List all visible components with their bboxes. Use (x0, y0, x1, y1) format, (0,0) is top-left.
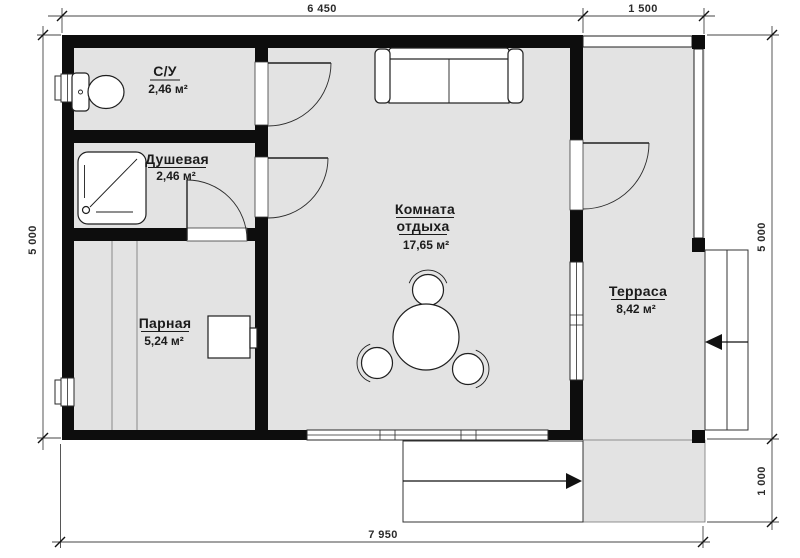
toilet-icon (72, 73, 124, 111)
wall-right-seg2 (570, 210, 583, 262)
wc-window-icon (55, 74, 74, 102)
room-area-terrace: 8,42 м² (616, 302, 656, 316)
wall-shower-steam-seg1 (74, 228, 187, 241)
room-label-steam: Парная (139, 315, 192, 331)
post-mid-right (692, 238, 705, 252)
wall-wc-shower (74, 130, 268, 143)
floor-plan-drawing: 6 450 1 500 5 000 5 000 1 000 7 950 С/У … (0, 0, 800, 558)
wall-vertical-seg3 (255, 217, 268, 430)
room-label-wc: С/У (153, 63, 177, 79)
lounge-east-window-icon (570, 262, 583, 380)
sauna-stove-icon (208, 316, 257, 358)
sofa-icon (375, 48, 523, 103)
wall-vertical-seg2 (255, 125, 268, 157)
shower-tray-icon (78, 152, 146, 224)
wall-vertical-seg1 (255, 48, 268, 62)
dim-bottom-total: 7 950 (368, 529, 398, 541)
room-area-steam: 5,24 м² (144, 334, 184, 348)
room-area-lounge: 17,65 м² (403, 238, 449, 252)
porch-floor (583, 440, 705, 522)
wall-right-seg3 (570, 380, 583, 440)
railing-top (583, 36, 692, 47)
wall-left-seg2 (62, 102, 74, 378)
wall-bottom-seg1 (62, 430, 307, 440)
wall-top (62, 35, 583, 48)
dim-top-main: 6 450 (307, 3, 337, 15)
railing-right (694, 49, 703, 238)
steam-door-opening (187, 228, 247, 241)
wall-left-seg1 (62, 35, 74, 74)
room-area-shower: 2,46 м² (156, 169, 196, 183)
room-label-shower: Душевая (145, 151, 209, 167)
dim-right-porch: 1 000 (756, 466, 768, 496)
room-label-terrace: Терраса (609, 283, 667, 299)
steam-window-icon (55, 378, 74, 406)
room-area-wc: 2,46 м² (148, 82, 188, 96)
floor-plan-sheet: 6 450 1 500 5 000 5 000 1 000 7 950 С/У … (0, 0, 800, 558)
steps-south-icon (403, 441, 583, 522)
dim-right-height: 5 000 (756, 222, 768, 252)
room-label-lounge-line2: отдыха (396, 218, 449, 234)
room-label-lounge-line1: Комната (395, 201, 455, 217)
terrace-door-opening (570, 140, 583, 210)
terrace-floor (583, 47, 705, 440)
wc-door-opening (255, 62, 268, 125)
post-bottom-right (692, 430, 705, 443)
post-top-right (692, 35, 705, 49)
dim-left-height: 5 000 (27, 225, 39, 255)
steps-east-icon (705, 250, 748, 430)
table-top (393, 304, 459, 370)
wall-right-seg1 (570, 35, 583, 140)
dim-top-terrace: 1 500 (628, 3, 658, 15)
shower-door-opening (255, 157, 268, 217)
lounge-south-window-icon (307, 430, 548, 440)
